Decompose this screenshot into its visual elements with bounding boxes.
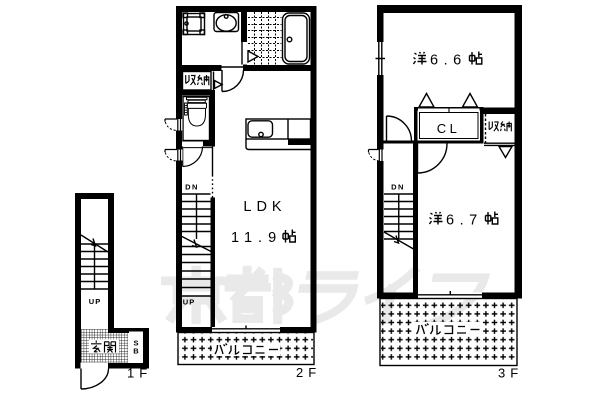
svg-text:LDK: LDK <box>243 199 286 215</box>
svg-text:3F: 3F <box>498 366 523 381</box>
svg-text:2F: 2F <box>296 365 321 380</box>
svg-text:DN: DN <box>391 183 405 192</box>
svg-text:6.7: 6.7 <box>446 213 483 229</box>
svg-text:11.9: 11.9 <box>231 230 282 246</box>
svg-text:UP: UP <box>89 297 101 306</box>
svg-text:CL: CL <box>437 121 461 136</box>
svg-text:B: B <box>133 347 139 356</box>
svg-text:UP: UP <box>183 298 195 307</box>
svg-text:1F: 1F <box>127 366 152 381</box>
svg-text:6.6: 6.6 <box>430 53 467 69</box>
svg-text:DN: DN <box>185 183 199 192</box>
